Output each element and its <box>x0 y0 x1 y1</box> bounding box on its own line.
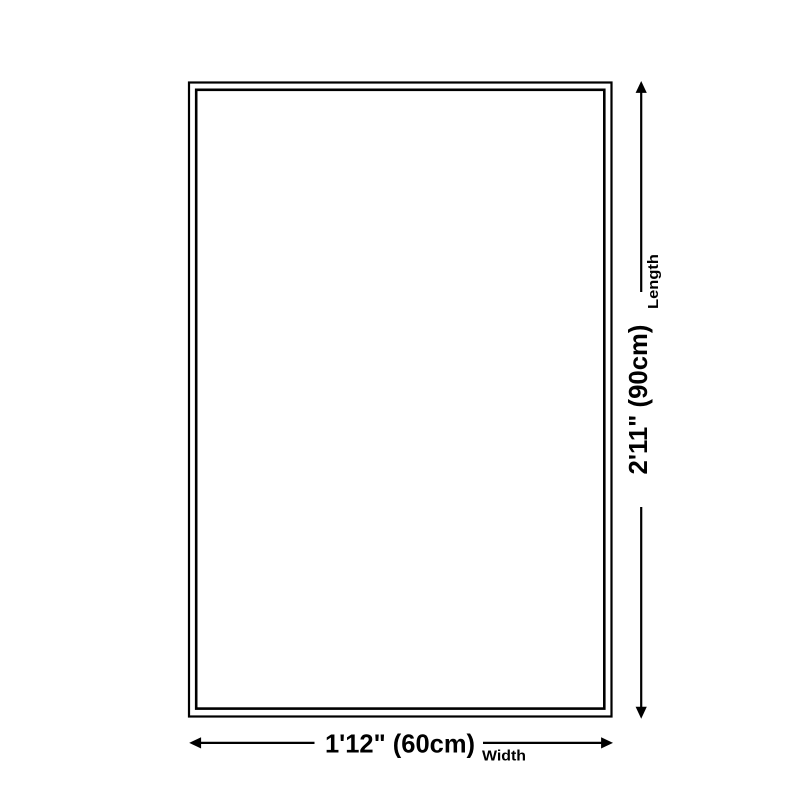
svg-text:1'12" (60cm): 1'12" (60cm) <box>325 729 475 759</box>
svg-text:Width: Width <box>482 747 526 764</box>
svg-text:Length: Length <box>645 254 662 309</box>
svg-text:2'11" (90cm): 2'11" (90cm) <box>623 325 653 475</box>
